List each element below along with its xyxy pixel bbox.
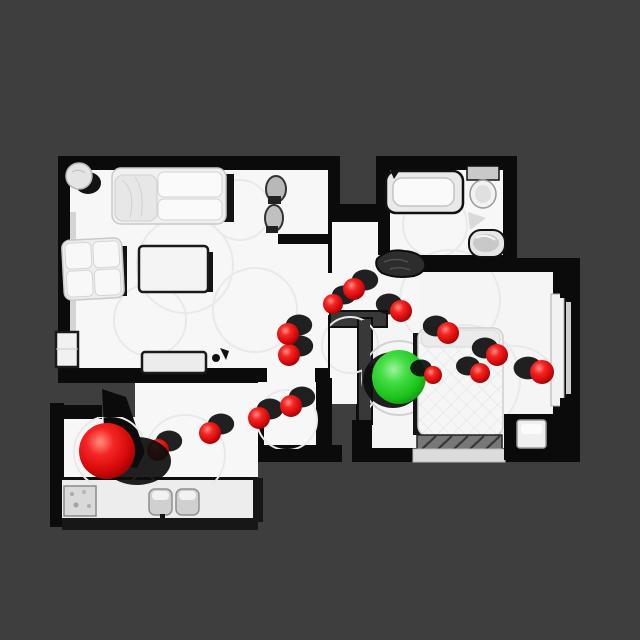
door-knob [212, 354, 220, 362]
bedroom-door-frame [551, 294, 564, 406]
waypoint-marker [530, 360, 554, 384]
scan-viewer-canvas[interactable] [0, 0, 640, 640]
stove [64, 486, 96, 516]
toilet-tank [467, 166, 499, 180]
waypoint-marker [390, 300, 412, 322]
bed-base [413, 449, 505, 462]
waypoint-marker [280, 395, 302, 417]
waypoint-marker [277, 323, 299, 345]
floor-lamp [66, 163, 92, 189]
coffee-table [139, 246, 208, 292]
tv-stand [142, 352, 206, 373]
clothes-pile [376, 250, 425, 277]
waypoint-marker [424, 366, 442, 384]
waypoint-marker [470, 363, 490, 383]
nook-wall [278, 234, 340, 244]
floorplan-scene [0, 0, 640, 640]
waypoint-marker [323, 294, 343, 314]
goal-marker [372, 350, 426, 404]
sofa-blanket [115, 175, 157, 221]
waypoint-marker [278, 344, 300, 366]
waypoint-marker [343, 278, 365, 300]
waypoint-marker [486, 344, 508, 366]
start-marker [79, 423, 135, 479]
waypoint-marker [248, 407, 270, 429]
armchair [61, 237, 124, 300]
hall-north-wall [330, 204, 384, 222]
waypoint-marker [199, 422, 221, 444]
waypoint-marker [437, 322, 459, 344]
